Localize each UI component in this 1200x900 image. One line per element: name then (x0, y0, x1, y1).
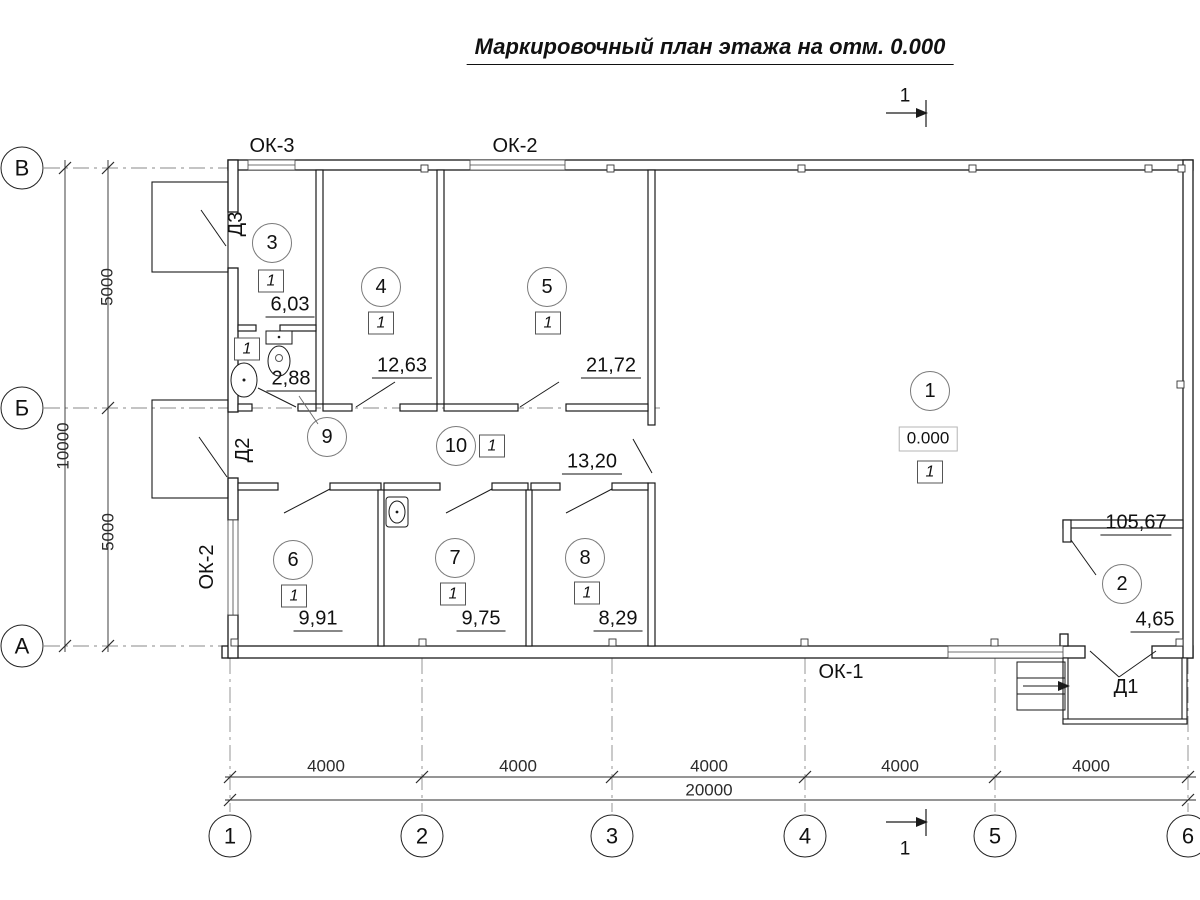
finish-marker-room10: 1 (479, 435, 505, 458)
dim-4000-3: 4000 (690, 758, 728, 775)
room-bubble-7: 7 (435, 538, 475, 578)
dim-4000-4: 4000 (881, 758, 919, 775)
room-number: 3 (266, 232, 277, 255)
door-label-d1: Д1 (1114, 677, 1139, 697)
finish-marker-room6: 1 (281, 585, 307, 608)
area-room4: 12,63 (372, 356, 432, 379)
door-label-d3: Д3 (226, 212, 246, 237)
room-number: 5 (541, 276, 552, 299)
finish-marker-room7: 1 (440, 583, 466, 606)
axis-letter: В (15, 155, 30, 181)
dim-5000-1: 5000 (99, 268, 116, 306)
room-number: 1 (924, 380, 935, 403)
area-room7: 9,75 (457, 609, 506, 632)
room-number: 8 (579, 547, 590, 570)
area-room1: 105,67 (1100, 513, 1171, 536)
area-room6: 9,91 (294, 609, 343, 632)
window-label-ok2-top: ОК-2 (493, 136, 538, 156)
room-number: 4 (375, 276, 386, 299)
finish-marker-room3: 1 (258, 270, 284, 293)
axis-letter: А (15, 633, 30, 659)
stairs-icon (1017, 662, 1070, 710)
door-label-d2: Д2 (233, 438, 253, 463)
dim-4000-2: 4000 (499, 758, 537, 775)
section-arrow-bottom (886, 809, 928, 836)
dim-4000-1: 4000 (307, 758, 345, 775)
finish-marker-room4: 1 (368, 312, 394, 335)
axis-number: 5 (989, 823, 1001, 849)
elevation-mark: 0.000 (899, 427, 958, 452)
dim-20000: 20000 (685, 782, 732, 799)
area-room8: 8,29 (594, 609, 643, 632)
room-bubble-6: 6 (273, 540, 313, 580)
axis-bubble-b: Б (1, 387, 44, 430)
area-room5: 21,72 (581, 356, 641, 379)
section-mark-top-label: 1 (900, 87, 911, 106)
axis-number: 3 (606, 823, 618, 849)
axis-number: 1 (224, 823, 236, 849)
drawing-title: Маркировочный план этажа на отм. 0.000 (467, 34, 954, 65)
exterior-walls (222, 160, 1193, 658)
room-number: 2 (1116, 573, 1127, 596)
room-bubble-8: 8 (565, 538, 605, 578)
axis-number: 4 (799, 823, 811, 849)
room-number: 7 (449, 547, 460, 570)
axis-bubble-4: 4 (784, 815, 827, 858)
area-room9: 2,88 (267, 369, 316, 392)
area-room10: 13,20 (562, 452, 622, 475)
axis-number: 2 (416, 823, 428, 849)
dim-4000-5: 4000 (1072, 758, 1110, 775)
axis-bubble-v: В (1, 147, 44, 190)
room-bubble-3: 3 (252, 223, 292, 263)
axis-bubble-1: 1 (209, 815, 252, 858)
dim-5000-2: 5000 (100, 513, 117, 551)
floor-plan-sheet: Маркировочный план этажа на отм. 0.000 1… (0, 0, 1200, 900)
porch-left (152, 182, 228, 498)
section-mark-bottom-label: 1 (900, 840, 911, 859)
sink-icon-room7 (386, 497, 408, 527)
finish-marker-room8: 1 (574, 582, 600, 605)
room-bubble-1: 1 (910, 371, 950, 411)
room-bubble-4: 4 (361, 267, 401, 307)
finish-marker-room9: 1 (234, 338, 260, 361)
finish-marker-room1: 1 (917, 461, 943, 484)
axis-bubble-5: 5 (974, 815, 1017, 858)
axis-number: 6 (1182, 823, 1194, 849)
room-number: 10 (445, 435, 467, 458)
axis-bubble-3: 3 (591, 815, 634, 858)
dim-10000: 10000 (55, 422, 72, 469)
sink-icon-wc (231, 363, 257, 397)
area-room2: 4,65 (1131, 610, 1180, 633)
area-room3: 6,03 (266, 295, 315, 318)
room-bubble-10: 10 (436, 426, 476, 466)
window-label-ok2-left: ОК-2 (197, 545, 217, 590)
axis-bubble-2: 2 (401, 815, 444, 858)
window-label-ok3: ОК-3 (250, 136, 295, 156)
window-label-ok1: ОК-1 (819, 662, 864, 682)
room-number: 6 (287, 549, 298, 572)
room-bubble-5: 5 (527, 267, 567, 307)
finish-marker-room5: 1 (535, 312, 561, 335)
interior-walls (238, 170, 1183, 646)
room-bubble-9: 9 (307, 417, 347, 457)
room-number: 9 (321, 426, 332, 449)
room-bubble-2: 2 (1102, 564, 1142, 604)
axis-letter: Б (15, 395, 29, 421)
axis-bubble-a: А (1, 625, 44, 668)
wall-ties (231, 165, 1185, 646)
